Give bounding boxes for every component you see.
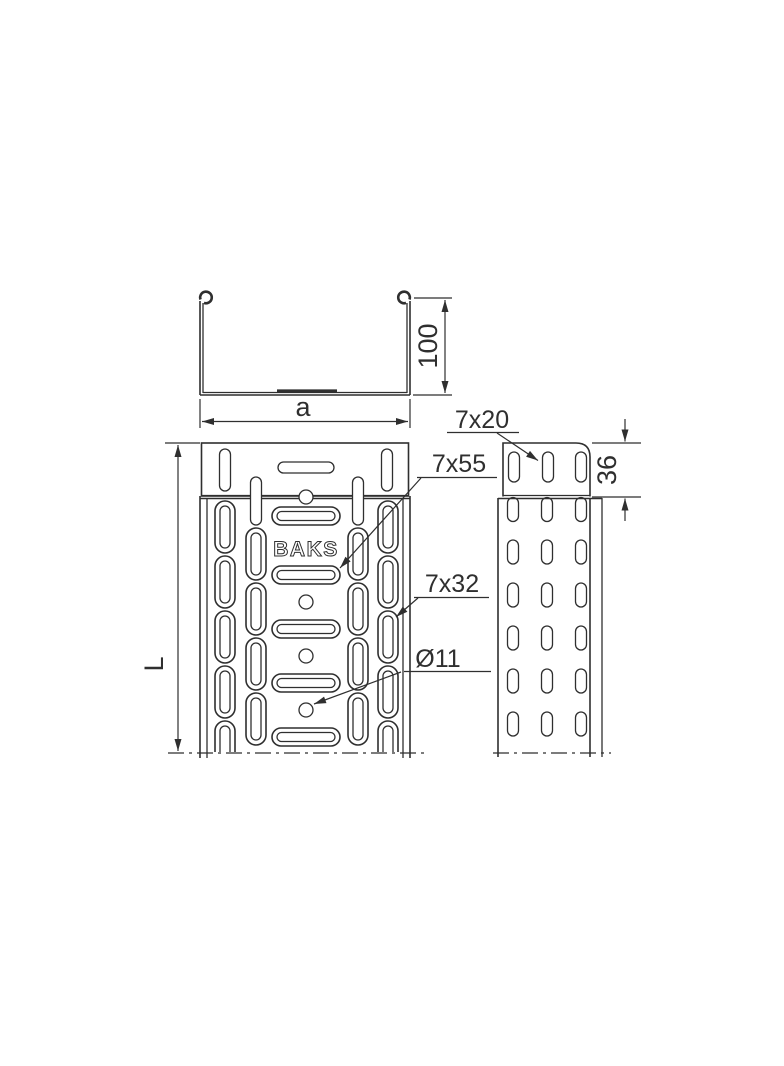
slot [272, 566, 340, 584]
slot [246, 528, 266, 580]
slot [272, 674, 340, 692]
slot [246, 583, 266, 635]
slot [542, 583, 553, 607]
slot [576, 712, 587, 736]
cross-section-view [200, 292, 410, 395]
slot [348, 638, 368, 690]
callout-label-center-slot: 7x55 [432, 450, 486, 478]
slot [251, 477, 262, 525]
dimension-length-L: L [139, 443, 200, 751]
plan-end-flange [202, 443, 409, 496]
slot [215, 666, 235, 718]
slot [378, 501, 398, 553]
slot [508, 626, 519, 650]
slot [542, 669, 553, 693]
slot [272, 728, 340, 746]
dimension-label-height: 100 [413, 323, 443, 368]
slot [576, 540, 587, 564]
brand-logo: BAKS [273, 538, 339, 561]
slot [576, 669, 587, 693]
slot [272, 507, 340, 525]
dimension-height-100: 100 [413, 298, 452, 395]
slot [215, 611, 235, 663]
slot [215, 501, 235, 553]
slot [378, 721, 398, 773]
cable-tray-drawing: 100 a [0, 0, 784, 1066]
slot [378, 611, 398, 663]
slot [508, 712, 519, 736]
plan-view: BAKS [168, 443, 428, 773]
slot [542, 626, 553, 650]
slot [508, 498, 519, 522]
slot [542, 498, 553, 522]
slot [348, 583, 368, 635]
side-perforation-pattern [508, 498, 587, 737]
slot [542, 540, 553, 564]
leader-line [396, 598, 418, 617]
slot [378, 556, 398, 608]
dimension-label-flange: 36 [592, 455, 622, 485]
technical-drawing-page: 100 a [0, 0, 784, 1066]
slot [353, 477, 364, 525]
slot [272, 620, 340, 638]
slot [215, 721, 235, 773]
side-view [493, 443, 611, 757]
slot [246, 693, 266, 745]
mounting-hole [299, 649, 313, 663]
dimension-label-width: a [295, 392, 311, 422]
callout-label-flange-slot: 7x20 [455, 406, 509, 434]
side-end-flange [503, 443, 590, 497]
callout-label-side-slot: 7x32 [425, 570, 479, 598]
right-hook-curl [398, 292, 410, 304]
mounting-hole [299, 703, 313, 717]
slot [576, 498, 587, 522]
callout-label-hole: Ø11 [415, 645, 460, 673]
dimension-width-a: a [200, 392, 410, 428]
slot [576, 626, 587, 650]
mounting-hole [299, 490, 313, 504]
left-hook-curl [200, 292, 212, 304]
slot [508, 669, 519, 693]
slot [508, 583, 519, 607]
slot [542, 712, 553, 736]
dimension-flange-36: 36 [592, 419, 641, 521]
slot [215, 556, 235, 608]
slot [348, 693, 368, 745]
slot [508, 540, 519, 564]
mounting-hole [299, 595, 313, 609]
slot [348, 528, 368, 580]
slot [576, 583, 587, 607]
dimension-label-length: L [139, 656, 169, 671]
slot [246, 638, 266, 690]
